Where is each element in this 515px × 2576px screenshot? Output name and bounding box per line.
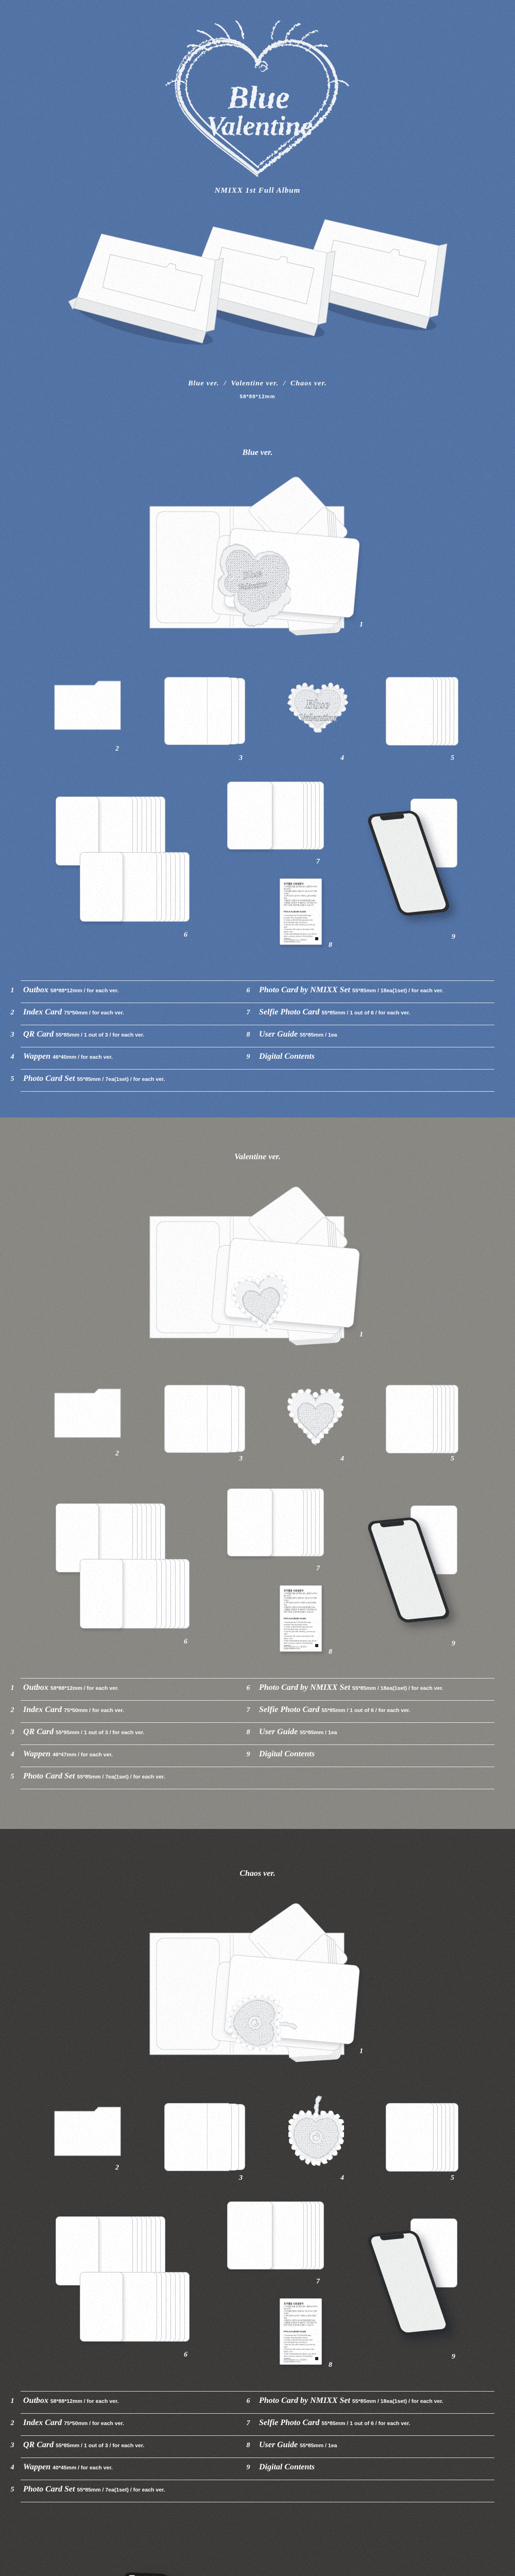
svg-text:Blue: Blue [305, 698, 330, 711]
svg-text:Valentine: Valentine [299, 713, 337, 723]
